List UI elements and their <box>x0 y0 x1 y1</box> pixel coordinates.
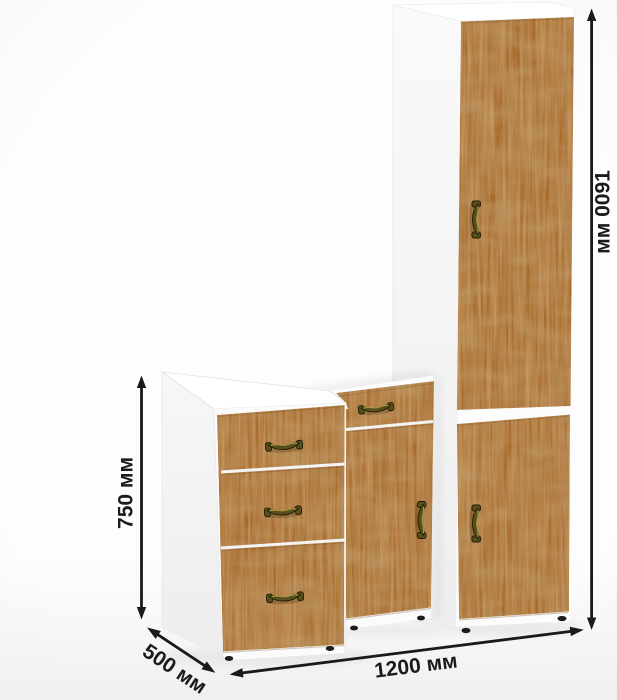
svg-text:750 мм: 750 мм <box>115 457 138 529</box>
svg-text:мм 0091: мм 0091 <box>592 170 615 254</box>
